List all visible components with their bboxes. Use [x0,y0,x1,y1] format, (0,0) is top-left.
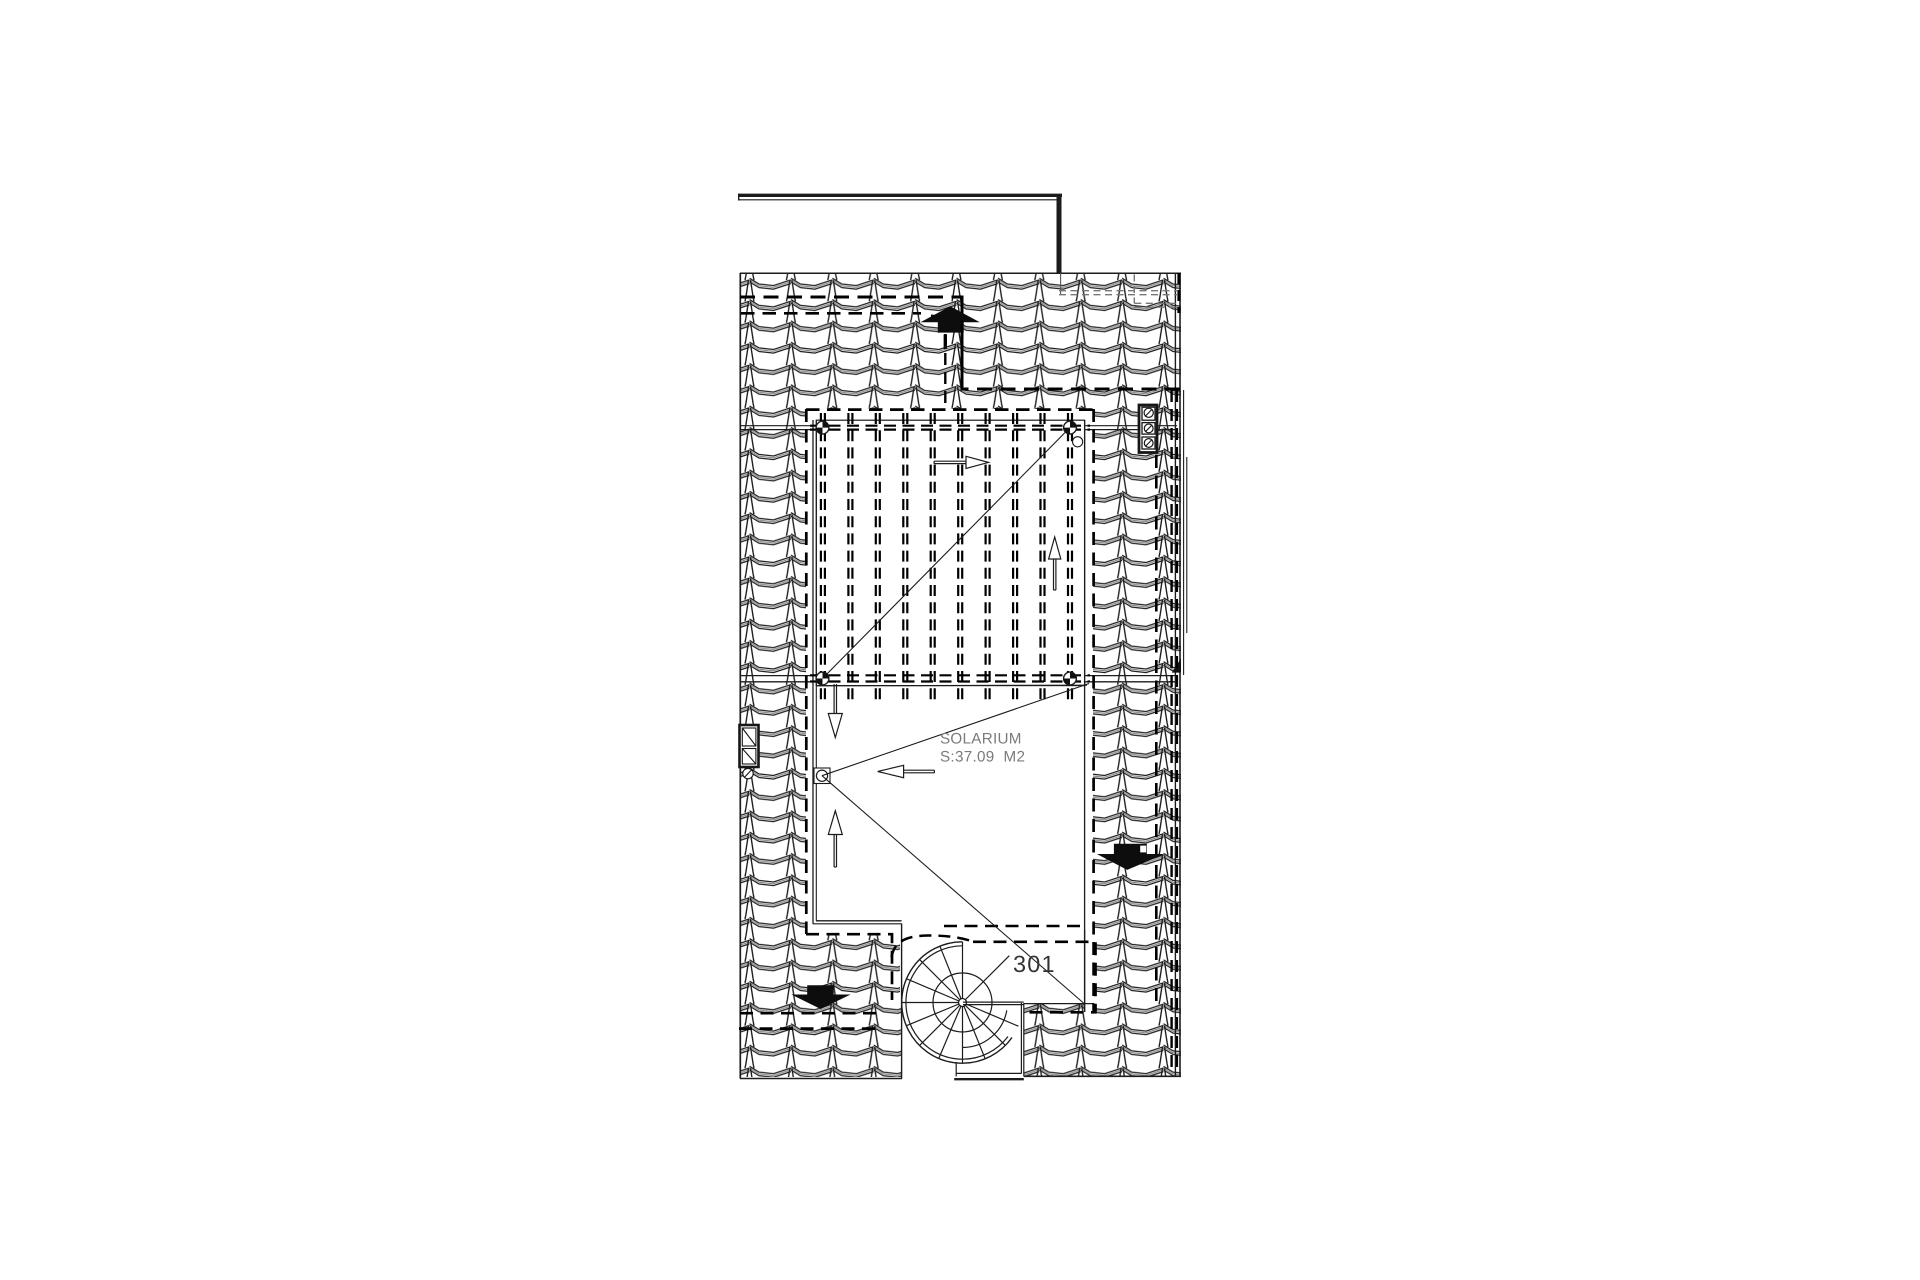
svg-text:301: 301 [1013,951,1056,977]
svg-text:S:37.09 M2: S:37.09 M2 [940,749,1025,766]
svg-text:SOLARIUM: SOLARIUM [940,731,1022,748]
